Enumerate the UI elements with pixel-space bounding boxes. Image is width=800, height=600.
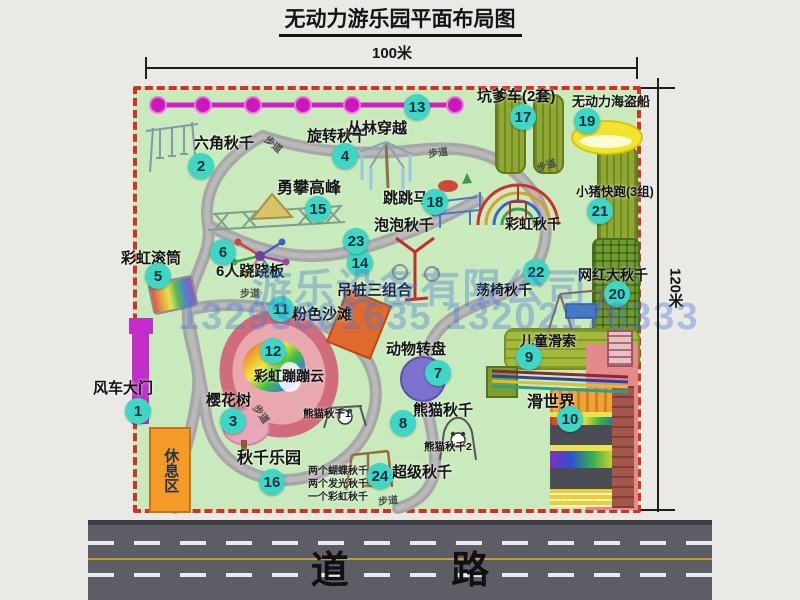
page-title: 无动力游乐园平面布局图 xyxy=(0,8,800,37)
attraction-badge-1: 1 xyxy=(125,398,151,424)
attraction-badge-12: 12 xyxy=(260,338,286,364)
attraction-badge-4: 4 xyxy=(332,143,358,169)
park-plan-canvas: 无动力游乐园平面布局图 100米 120米 休息区 xyxy=(0,0,800,600)
attraction-label-15: 勇攀高峰 xyxy=(277,180,341,198)
swing-paradise-sub-2: 两个发光秋千 xyxy=(308,478,368,491)
attraction-label-24: 超级秋千 xyxy=(392,465,452,482)
attraction-badge-15: 15 xyxy=(305,196,331,222)
kids-zipline-cables-icon xyxy=(492,371,628,392)
attraction-label-13: 丛林穿越 xyxy=(347,121,407,138)
swing-paradise-sub-1: 两个蝴蝶秋千 xyxy=(308,465,368,478)
attraction-badge-8: 8 xyxy=(390,410,416,436)
attraction-label-17: 坑爹车(2套) xyxy=(477,89,555,106)
attraction-badge-17: 17 xyxy=(510,104,536,130)
rainbow-swing-label: 彩虹秋千 xyxy=(505,217,561,232)
attraction-label-8: 熊猫秋千 xyxy=(413,403,473,420)
road-label: 道 路 xyxy=(88,539,712,594)
attraction-label-23: 泡泡秋千 xyxy=(374,218,434,235)
top-dimension-tick-left xyxy=(145,57,147,79)
panda-swing-2-label: 熊猫秋千2 xyxy=(424,442,472,454)
attraction-badge-21: 21 xyxy=(587,198,613,224)
attraction-badge-9: 9 xyxy=(516,344,542,370)
attraction-badge-24: 24 xyxy=(367,463,393,489)
attraction-badge-10: 10 xyxy=(557,406,583,432)
panda-swing-1-label: 熊猫秋千1 xyxy=(303,409,351,421)
attraction-badge-23: 23 xyxy=(343,228,369,254)
road: 道 路 xyxy=(88,520,712,600)
swing-paradise-sublist: 两个蝴蝶秋千 两个发光秋千 一个彩虹秋千 xyxy=(308,465,368,504)
attraction-badge-6: 6 xyxy=(210,239,236,265)
top-dimension-tick-right xyxy=(636,57,638,79)
top-dimension-label: 100米 xyxy=(372,46,412,63)
right-dimension-tick-top xyxy=(641,87,675,89)
watermark-phones: 13293861635 13202178333 xyxy=(178,296,700,339)
attraction-label-21: 小猪快跑(3组) xyxy=(576,186,654,200)
attraction-label-1: 风车大门 xyxy=(93,381,153,398)
attraction-label-19: 无动力海盗船 xyxy=(572,95,650,109)
rotating-swing-icon xyxy=(360,142,412,190)
attraction-label-3: 樱花树 xyxy=(206,393,251,410)
attraction-label-12: 彩虹蹦蹦云 xyxy=(254,369,324,384)
walkway-label-6: 步道 xyxy=(377,491,398,508)
top-dimension-line xyxy=(146,67,637,69)
page-title-text: 无动力游乐园平面布局图 xyxy=(279,8,522,37)
walkway-label-2: 步道 xyxy=(427,143,449,161)
right-dimension-line xyxy=(657,78,659,512)
climbing-peak-pyramid xyxy=(252,194,292,219)
attraction-label-2: 六角秋千 xyxy=(194,136,254,153)
attraction-badge-7: 7 xyxy=(425,360,451,386)
attraction-badge-3: 3 xyxy=(220,408,246,434)
attraction-badge-13: 13 xyxy=(404,94,430,120)
right-dimension-tick-bottom xyxy=(641,509,675,511)
attraction-label-7: 动物转盘 xyxy=(386,342,446,359)
attraction-label-16: 秋千乐园 xyxy=(237,450,301,468)
swing-paradise-sub-3: 一个彩虹秋千 xyxy=(308,491,368,504)
attraction-badge-18: 18 xyxy=(422,189,448,215)
attraction-badge-5: 5 xyxy=(145,263,171,289)
attraction-badge-2: 2 xyxy=(188,153,214,179)
attraction-badge-19: 19 xyxy=(574,108,600,134)
attraction-badge-16: 16 xyxy=(259,469,285,495)
panda-swing-icon-2 xyxy=(440,418,476,460)
